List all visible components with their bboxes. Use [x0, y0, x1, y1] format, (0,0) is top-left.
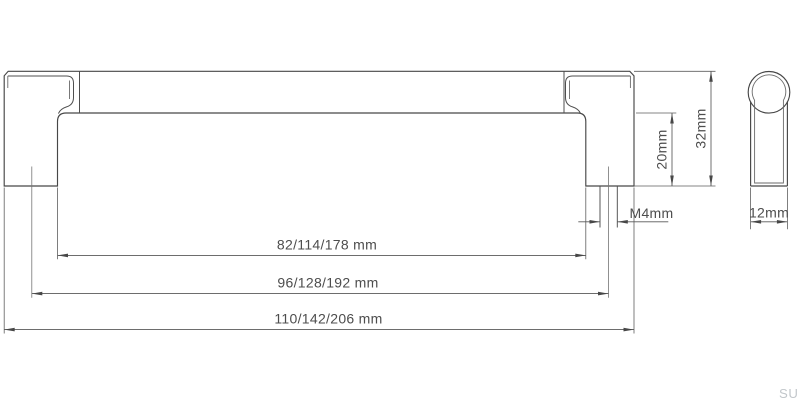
- arrowhead-up-icon: [709, 71, 713, 82]
- arrowhead-right-icon: [575, 254, 586, 258]
- handle-dimension-drawing: 82/114/178 mm 96/128/192 mm 110/142/206 …: [0, 0, 800, 400]
- dim-label-screw-thread: M4mm: [630, 205, 674, 221]
- handle-outline: [4, 71, 634, 186]
- dim-label-hole-spacing: 96/128/192 mm: [277, 275, 378, 291]
- dim-label-overall-height: 32mm: [693, 108, 709, 148]
- side-view: [748, 72, 790, 187]
- side-post-inner-edge: [752, 75, 786, 183]
- arrowhead-down-icon: [709, 176, 713, 187]
- side-post-outline: [751, 102, 788, 186]
- front-view: [4, 71, 634, 297]
- dim-label-overall-length: 110/142/206 mm: [274, 311, 382, 327]
- arrowhead-left-icon: [4, 328, 15, 332]
- arrowhead-left-icon: [617, 220, 628, 224]
- watermark-text: SU: [779, 386, 799, 400]
- right-post-cap-inner-edge: [570, 76, 631, 99]
- arrowhead-right-icon: [777, 220, 788, 224]
- dim-label-handle-depth: 12mm: [749, 205, 789, 221]
- right-post-cap-detail: [566, 76, 631, 114]
- arrowhead-right-icon: [624, 328, 635, 332]
- arrowhead-right-icon: [598, 292, 609, 296]
- bar-post-boundaries: [80, 71, 565, 113]
- technical-drawing-canvas: 82/114/178 mm 96/128/192 mm 110/142/206 …: [0, 0, 800, 400]
- arrowhead-left-icon: [751, 220, 762, 224]
- arrowhead-right-icon: [590, 220, 601, 224]
- arrowhead-left-icon: [58, 254, 69, 258]
- arrowhead-left-icon: [32, 292, 43, 296]
- dim-label-inner-span: 82/114/178 mm: [277, 237, 377, 253]
- dim-label-drop-height: 20mm: [654, 129, 670, 169]
- arrowhead-up-icon: [670, 113, 674, 124]
- left-post-cap-detail: [8, 76, 74, 114]
- extension-lines: [4, 71, 787, 333]
- arrowhead-down-icon: [670, 176, 674, 187]
- dimensions: 82/114/178 mm 96/128/192 mm 110/142/206 …: [4, 71, 789, 333]
- left-post-cap-inner-edge: [8, 76, 70, 99]
